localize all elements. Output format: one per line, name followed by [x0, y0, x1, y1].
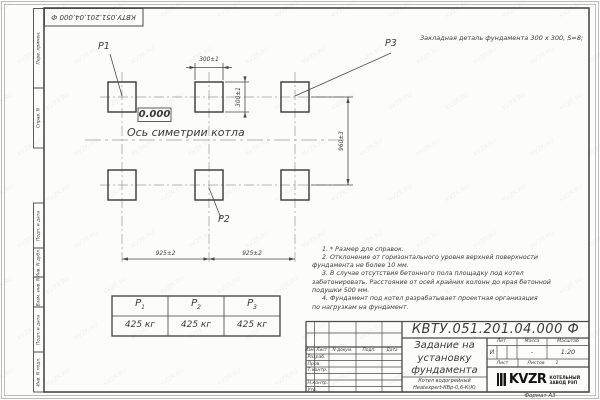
sign-row-utv: Утв. — [308, 388, 318, 393]
lit-label: Лит. — [487, 339, 517, 344]
side-label-vzam-inv: Взам. инв. N — [36, 278, 41, 307]
side-label-inv-podl: Инв. N подл. — [36, 357, 41, 386]
note-line: 3. В случае отсутствия бетонного пола пл… — [312, 270, 551, 278]
load-table-header: P1 — [112, 298, 168, 311]
sign-row-prov: Пров. — [308, 362, 321, 367]
note-line: 2. Отклонение от горизонтального уровня … — [312, 254, 551, 262]
mass-label: Масса — [517, 339, 547, 344]
top-stamp-doc-number: КВТУ.051.201.04.000 Ф — [44, 8, 143, 26]
load-col-sub: 3 — [253, 304, 257, 311]
load-table-value: 425 кг — [168, 320, 224, 330]
side-label-perv-primen: Перв. примен. — [36, 32, 41, 65]
side-label-inv-dubl: Инв. N дубл. — [36, 248, 41, 277]
dim-plate-width: 300±1 — [193, 57, 225, 63]
format-label: Формат А3 — [505, 393, 575, 399]
dim-plate-height: 300±1 — [236, 87, 242, 107]
company-name-line: ЗАВОД РЭП — [549, 380, 580, 385]
product-line: Котел водогрейный — [418, 378, 471, 384]
title-line: установку — [418, 353, 472, 364]
product-line: Heatexpert-КВр-0,6-К(К) — [413, 385, 476, 391]
drawing-sheet: KVZR.RUKVZR.RUKVZR.RUKVZR.RUKVZR.RUKVZR.… — [0, 0, 600, 400]
title-line: Задание на — [414, 340, 475, 351]
side-label-podp-data-1: Подп. и дата — [36, 211, 41, 241]
load-col-sub: 2 — [197, 304, 201, 311]
rev-header-ndokum: N докум. — [329, 348, 356, 353]
load-table-header: P2 — [168, 298, 224, 311]
dim-col-spacing-left: 925±2 — [151, 251, 181, 257]
product-name: Котел водогрейный Heatexpert-КВр-0,6-К(К… — [402, 378, 487, 392]
scale-label: Масштаб — [547, 339, 589, 344]
sign-row-nkontr: Н.контр. — [308, 381, 329, 386]
load-table-header: P3 — [224, 298, 280, 311]
plate-label-p3: P3 — [385, 38, 397, 49]
company-block: KVZR КОТЕЛЬНЫЙ ЗАВОД РЭП — [489, 368, 588, 391]
note-line: забетонировать. Расстояние от осей крайн… — [312, 279, 551, 287]
sheets-label: Листов — [518, 361, 554, 366]
rev-header-list: Лист — [315, 348, 330, 353]
sheet-label: Лист — [487, 361, 518, 366]
note-line: по нагрузкам на фундамент. — [312, 304, 551, 312]
company-logo: KVZR — [509, 372, 547, 387]
company-name: КОТЕЛЬНЫЙ ЗАВОД РЭП — [549, 375, 580, 385]
load-col-sub: 1 — [141, 304, 145, 311]
elevation-mark: 0.000 — [138, 108, 171, 122]
title-line: фундамента — [411, 365, 477, 376]
rev-header-podp: Подп. — [356, 348, 382, 353]
sign-row-razrab: Разраб. — [308, 355, 326, 360]
company-emblem-icon — [497, 373, 506, 386]
mass-value: - — [517, 346, 547, 360]
boiler-symmetry-axis-label: Ось симетрии котла — [127, 126, 245, 139]
sign-row-tkontr: Т.контр. — [308, 368, 328, 373]
load-table-value: 425 кг — [224, 320, 280, 330]
dim-col-spacing-right: 925±2 — [237, 251, 267, 257]
rev-header-izm: Изм. — [305, 348, 315, 353]
side-label-podp-data-2: Подп. и дата — [36, 315, 41, 345]
sheets-value: 1 — [550, 361, 564, 366]
load-table-value: 425 кг — [112, 320, 168, 330]
technical-notes: 1. * Размер для справок. 2. Отклонение о… — [312, 246, 551, 312]
dim-row-spacing: 960±3 — [339, 131, 345, 151]
rev-header-data: Дата — [382, 348, 402, 353]
embedded-part-note: Закладная деталь фундамента 300 х 300, S… — [420, 34, 583, 42]
plate-label-p2: P2 — [218, 214, 230, 225]
plate-label-p1: P1 — [98, 41, 110, 52]
title-block-title: Задание на установку фундамента — [402, 339, 487, 377]
centerlines — [85, 72, 352, 263]
company-name-line: КОТЕЛЬНЫЙ — [549, 375, 580, 380]
foundation-plates — [108, 82, 309, 200]
scale-value: 1:20 — [547, 346, 589, 360]
note-line: 4. Фундамент под котел разрабатывает про… — [312, 295, 551, 303]
title-block-doc-number: КВТУ.051.201.04.000 Ф — [402, 322, 589, 338]
note-line: 1. * Размер для справок. — [312, 246, 551, 254]
side-label-sprav-n: Справ. N — [36, 108, 41, 128]
lit-value: И — [487, 346, 497, 360]
